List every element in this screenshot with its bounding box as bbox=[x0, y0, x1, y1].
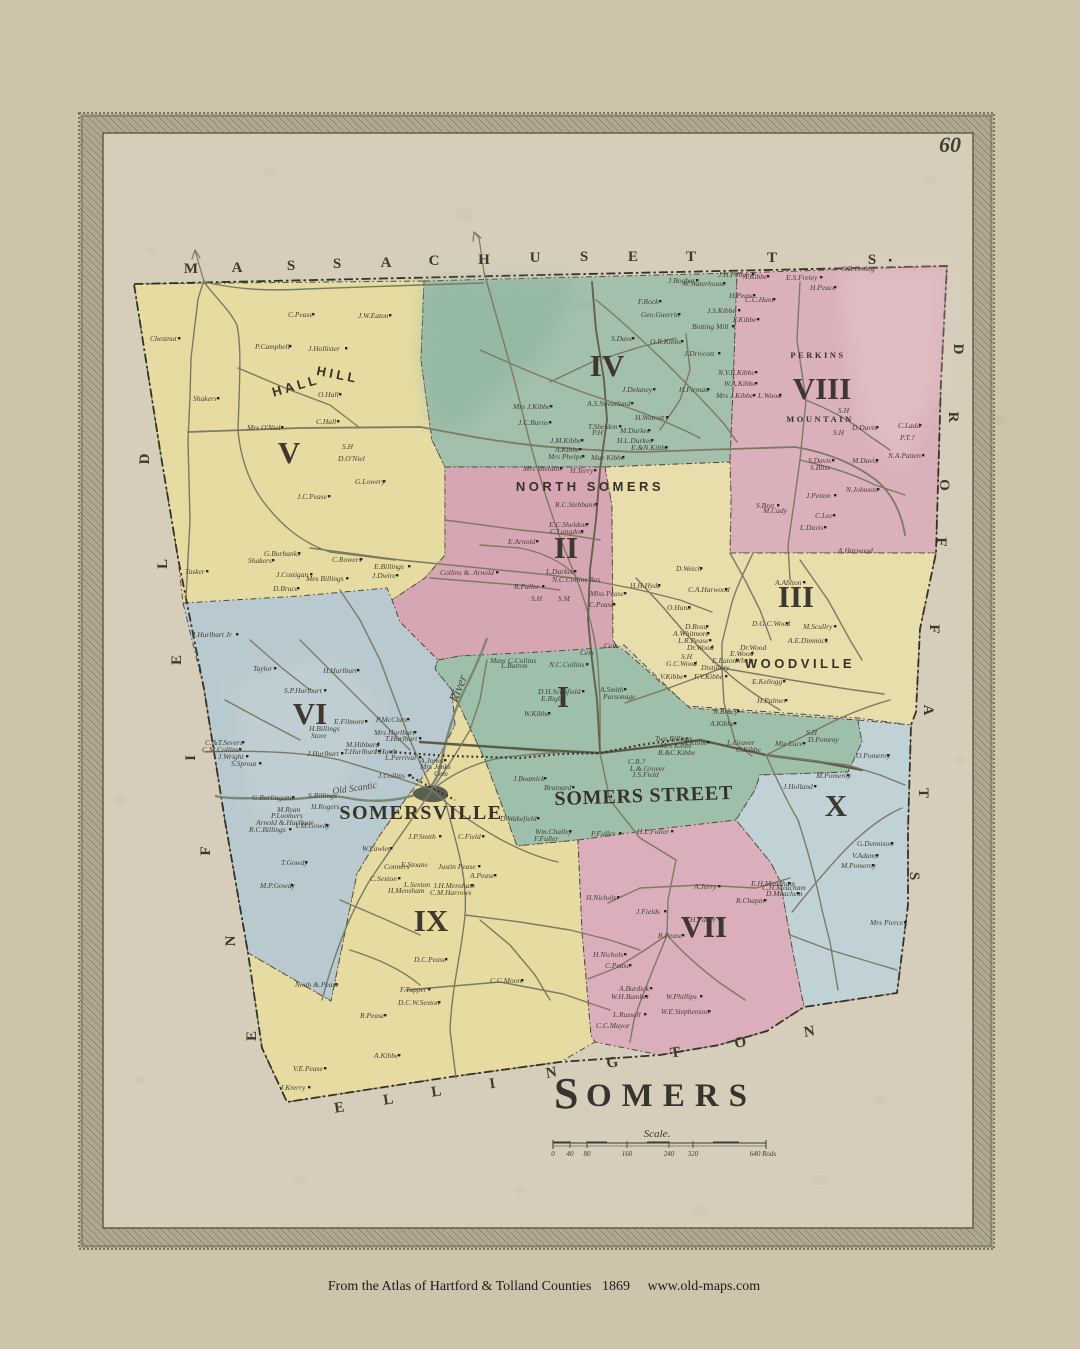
svg-text:From the Atlas of Hartford & T: From the Atlas of Hartford & Tolland Cou… bbox=[328, 1279, 760, 1294]
